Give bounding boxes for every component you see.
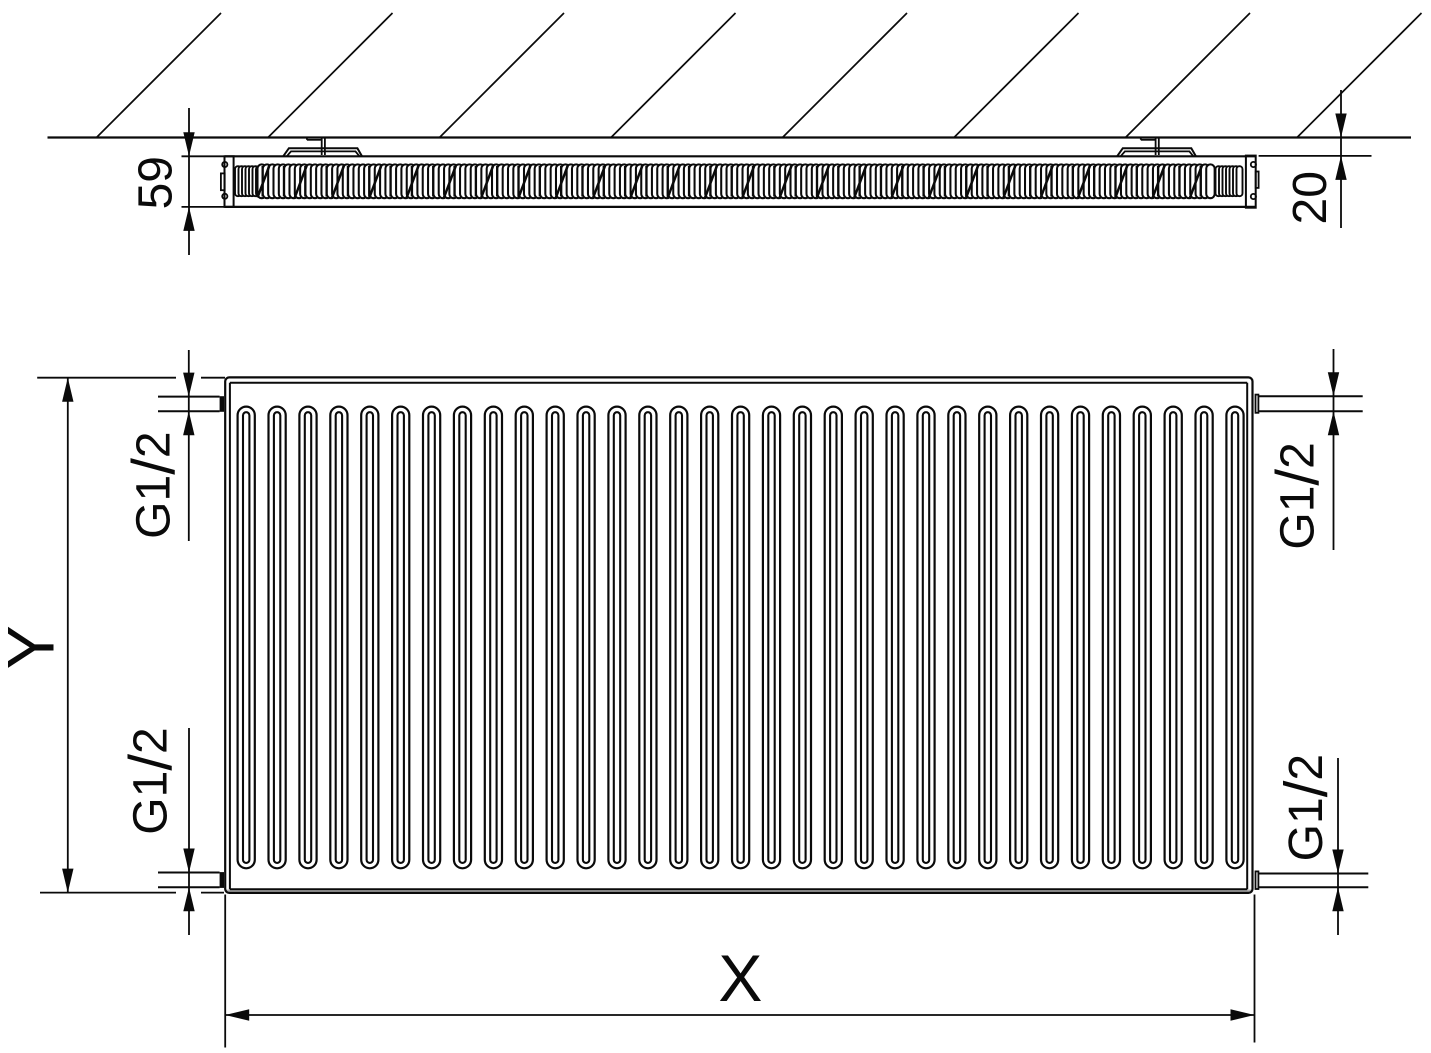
svg-text:G1/2: G1/2	[120, 431, 187, 538]
svg-text:G1/2: G1/2	[117, 727, 184, 834]
svg-text:G1/2: G1/2	[1264, 442, 1331, 549]
svg-text:X: X	[718, 941, 762, 1015]
svg-text:Y: Y	[0, 625, 67, 669]
svg-text:20: 20	[1284, 171, 1337, 224]
svg-text:59: 59	[130, 156, 183, 209]
svg-text:G1/2: G1/2	[1272, 754, 1339, 861]
